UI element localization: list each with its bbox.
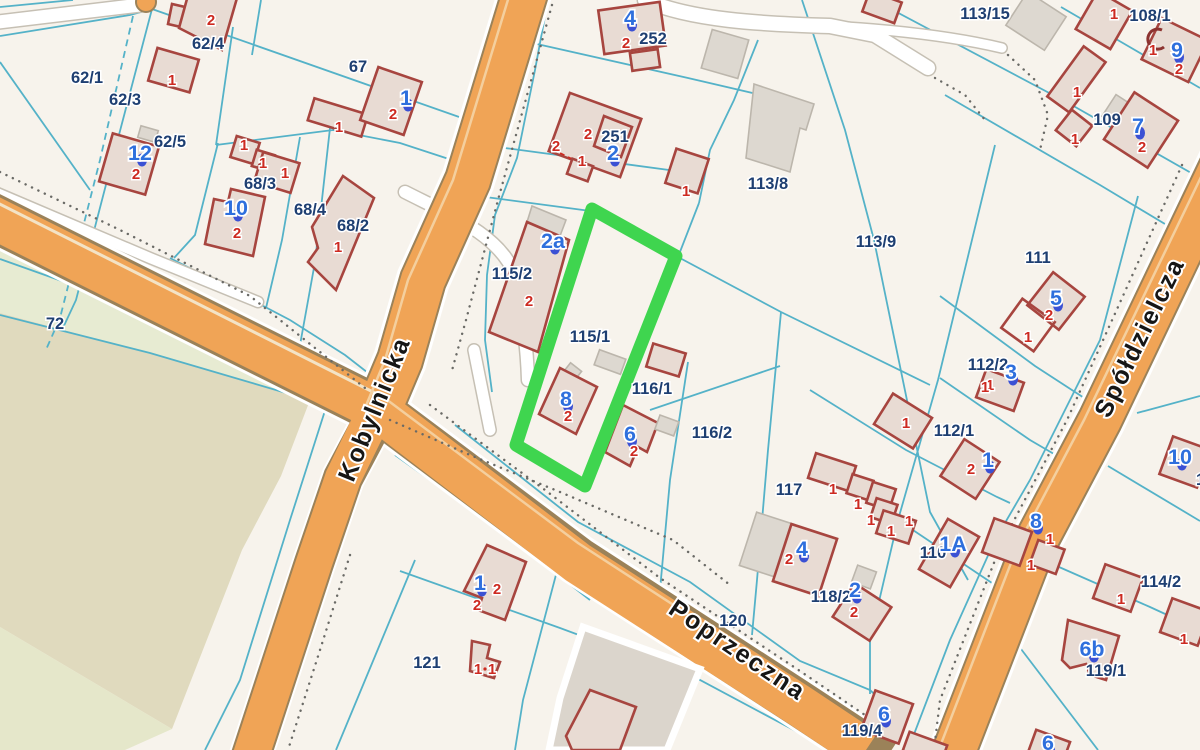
svg-text:2: 2: [785, 551, 793, 568]
svg-text:112/2: 112/2: [968, 356, 1008, 374]
svg-text:1: 1: [854, 496, 862, 513]
svg-text:10: 10: [224, 196, 248, 220]
svg-text:2: 2: [233, 225, 241, 242]
svg-text:2: 2: [849, 578, 861, 602]
svg-text:62/3: 62/3: [109, 91, 141, 109]
svg-text:11: 11: [1196, 471, 1200, 489]
svg-text:1: 1: [682, 183, 690, 200]
svg-text:120: 120: [719, 612, 747, 630]
svg-text:1: 1: [1180, 631, 1188, 648]
svg-text:1: 1: [1071, 131, 1079, 148]
svg-text:1: 1: [1110, 6, 1118, 23]
svg-text:67: 67: [349, 58, 367, 76]
svg-text:10: 10: [1168, 445, 1192, 469]
svg-text:119/1: 119/1: [1086, 662, 1126, 680]
svg-text:1: 1: [1149, 42, 1157, 59]
svg-text:1: 1: [1117, 591, 1125, 608]
svg-text:1: 1: [1024, 329, 1032, 346]
svg-text:1: 1: [259, 155, 267, 172]
svg-text:1: 1: [902, 415, 910, 432]
svg-text:111: 111: [1025, 249, 1051, 267]
svg-text:1: 1: [887, 523, 895, 540]
svg-text:1: 1: [335, 119, 343, 136]
svg-text:6b: 6b: [1079, 637, 1104, 661]
svg-text:8: 8: [1030, 509, 1042, 533]
svg-text:108/1: 108/1: [1129, 7, 1170, 25]
svg-text:118/2: 118/2: [811, 588, 851, 606]
svg-text:1: 1: [281, 165, 289, 182]
svg-text:7: 7: [1132, 114, 1144, 138]
svg-text:2: 2: [1175, 61, 1183, 78]
svg-text:12: 12: [128, 141, 152, 165]
svg-text:112/1: 112/1: [934, 422, 974, 440]
svg-text:62/4: 62/4: [192, 35, 225, 53]
svg-text:116/2: 116/2: [692, 424, 732, 442]
svg-text:1: 1: [168, 72, 176, 89]
svg-text:68/4: 68/4: [294, 201, 327, 219]
svg-text:2: 2: [564, 408, 572, 425]
svg-text:3: 3: [1005, 360, 1017, 384]
svg-text:4: 4: [624, 6, 636, 30]
svg-text:1: 1: [400, 86, 412, 110]
svg-text:1: 1: [1073, 84, 1081, 101]
svg-text:1: 1: [981, 379, 989, 396]
svg-text:6: 6: [878, 702, 890, 726]
svg-text:1: 1: [240, 137, 248, 154]
svg-text:2: 2: [493, 581, 501, 598]
svg-text:121: 121: [413, 654, 441, 672]
svg-text:2: 2: [207, 12, 215, 29]
svg-text:68/2: 68/2: [337, 217, 369, 235]
svg-text:113/9: 113/9: [856, 233, 896, 251]
svg-text:2: 2: [607, 141, 619, 165]
svg-text:2: 2: [525, 293, 533, 310]
svg-text:1: 1: [488, 661, 496, 678]
svg-text:113/15: 113/15: [960, 5, 1010, 23]
svg-text:6: 6: [1042, 731, 1054, 750]
svg-text:1: 1: [474, 571, 486, 595]
svg-text:109: 109: [1093, 111, 1121, 129]
svg-text:72: 72: [46, 315, 64, 333]
svg-text:2: 2: [630, 443, 638, 460]
svg-text:2: 2: [1138, 139, 1146, 156]
svg-text:119/4: 119/4: [842, 722, 883, 740]
svg-text:68/3: 68/3: [244, 175, 276, 193]
svg-text:2: 2: [850, 604, 858, 621]
svg-text:62/1: 62/1: [71, 69, 103, 87]
svg-text:4: 4: [796, 537, 808, 561]
svg-text:1: 1: [578, 153, 586, 170]
svg-text:2: 2: [1045, 307, 1053, 324]
svg-text:1: 1: [867, 512, 875, 529]
svg-text:1: 1: [1027, 557, 1035, 574]
svg-text:2a: 2a: [541, 229, 566, 253]
svg-text:117: 117: [776, 481, 803, 499]
svg-text:115/1: 115/1: [570, 328, 610, 346]
svg-text:1: 1: [1046, 531, 1054, 548]
svg-text:2: 2: [967, 461, 975, 478]
svg-text:2: 2: [389, 106, 397, 123]
svg-text:1: 1: [982, 448, 994, 472]
svg-text:1: 1: [334, 239, 342, 256]
svg-text:9: 9: [1171, 38, 1183, 62]
svg-text:113/8: 113/8: [748, 175, 788, 193]
svg-text:1A: 1A: [939, 532, 966, 556]
svg-text:62/5: 62/5: [154, 133, 186, 151]
svg-text:1: 1: [829, 481, 837, 498]
svg-text:116/1: 116/1: [632, 380, 672, 398]
svg-text:2: 2: [622, 35, 630, 52]
svg-text:1: 1: [474, 661, 482, 678]
svg-text:2: 2: [132, 166, 140, 183]
svg-text:2: 2: [473, 597, 481, 614]
svg-text:114/2: 114/2: [1141, 573, 1181, 591]
svg-text:2: 2: [552, 138, 560, 155]
svg-text:252: 252: [639, 30, 667, 48]
svg-text:2: 2: [584, 126, 592, 143]
svg-text:1: 1: [905, 513, 913, 530]
svg-text:115/2: 115/2: [492, 265, 532, 283]
